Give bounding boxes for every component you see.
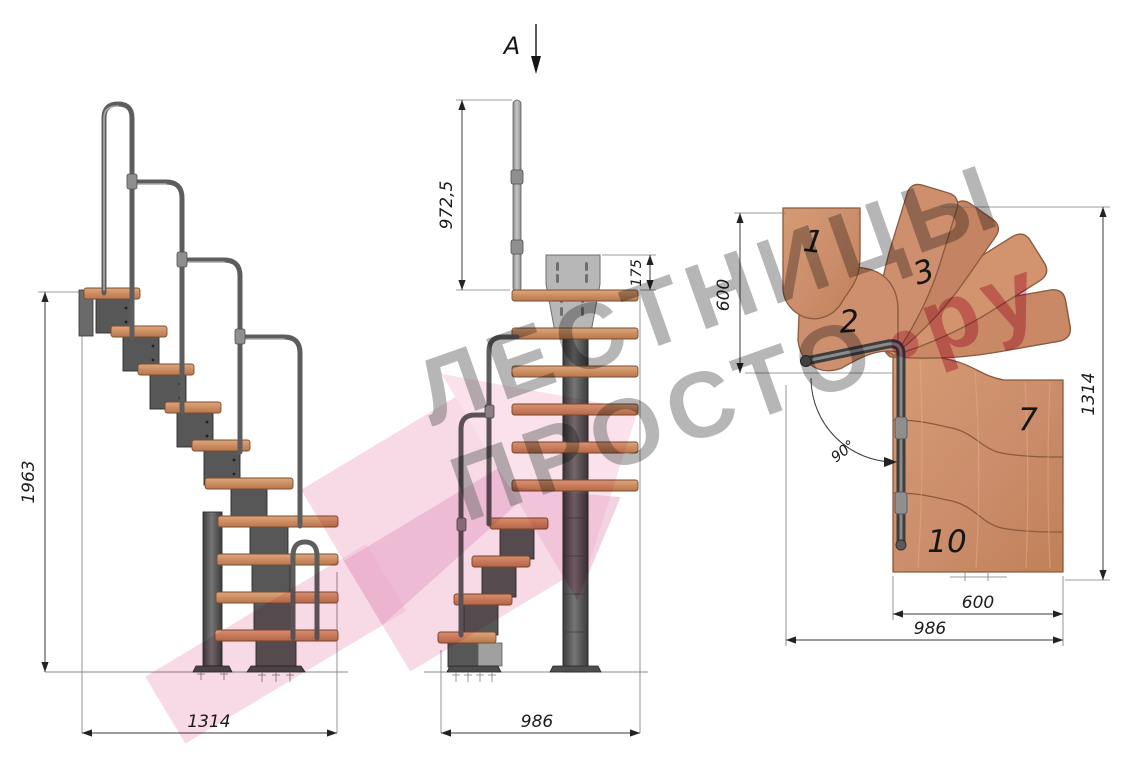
tread-number-7: 7: [1018, 402, 1038, 438]
section-arrow-icon: [531, 24, 541, 74]
front-elevation-view: A: [424, 24, 656, 733]
tread-number-10: 10: [927, 524, 966, 560]
dim-total-width: 986: [914, 619, 947, 639]
dim-turn-angle: 90°: [828, 438, 858, 466]
staircase-technical-drawing: 1963 1314 A: [0, 0, 1130, 763]
dim-side-width: 1314: [187, 712, 230, 732]
support-column: [203, 512, 222, 666]
dim-plan-length: 1314: [1079, 372, 1099, 415]
base-flange: [247, 666, 305, 672]
turn-angle-arc: 90°: [811, 378, 897, 467]
dim-bottom-width: 600: [962, 593, 994, 613]
dim-tread-depth: 600: [714, 279, 734, 311]
anchor-bolts: [258, 672, 294, 682]
front-handrail-post: [511, 100, 523, 292]
drawing-canvas: 1963 1314 A: [0, 0, 1130, 763]
plan-tread-stack: [893, 352, 1063, 572]
dim-front-width: 986: [521, 712, 554, 732]
plan-view: 1 2 3 7 10 90° 600 1314: [714, 182, 1110, 646]
anchor-bolts: [452, 672, 496, 682]
dim-plate-height: 175: [629, 259, 645, 287]
side-elevation-view: 1963 1314: [19, 104, 348, 733]
tread-number-2: 2: [838, 303, 860, 340]
dim-handrail-height: 972,5: [437, 181, 457, 230]
dim-side-height: 1963: [19, 460, 39, 503]
section-label: A: [502, 32, 520, 60]
front-treads: [438, 290, 638, 643]
